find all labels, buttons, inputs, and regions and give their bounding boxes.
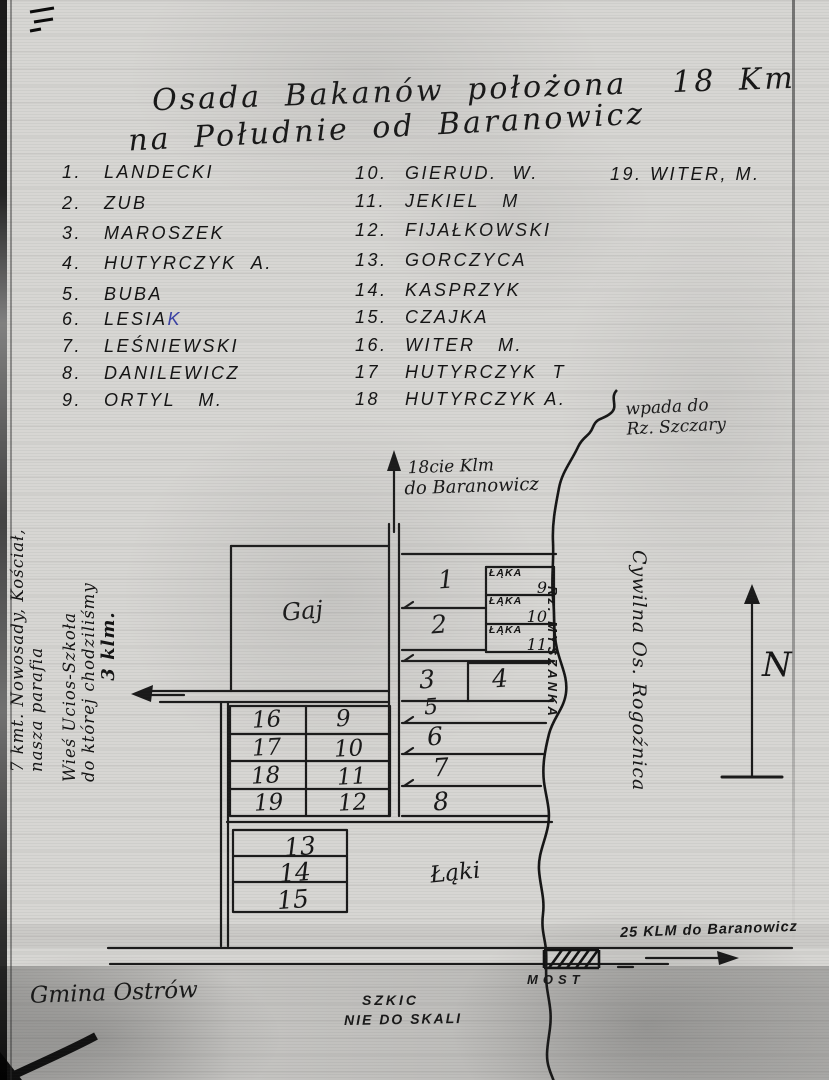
resident-row: 13.GORCZYCA <box>355 250 527 271</box>
river-name-label: Rz. MYSZANKA <box>545 586 560 728</box>
resident-name: JEKIEL M <box>405 191 520 212</box>
resident-name-blue-letter: K <box>168 309 183 330</box>
west-arrowhead-icon <box>131 685 153 702</box>
resident-number: 19. <box>610 164 650 185</box>
resident-row: 7.LEŚNIEWSKI <box>62 336 239 357</box>
scanned-map-page: Osada Bakanów położona 18 Km na Południe… <box>0 0 829 1080</box>
plot-number: 18 <box>250 762 281 789</box>
resident-number: 7. <box>62 336 104 357</box>
resident-number: 15. <box>355 307 405 328</box>
resident-name: MAROSZEK <box>104 223 225 244</box>
resident-name: HUTYRCZYK T <box>405 362 566 383</box>
resident-name: LEŚNIEWSKI <box>104 336 239 357</box>
west-note-parish-line2: nasza parafia <box>27 506 46 772</box>
plot-number: 7 <box>432 752 450 782</box>
resident-name: WITER M. <box>405 335 523 356</box>
compass-north-label: N <box>762 645 792 685</box>
meadow-plot: ŁĄKA 10 <box>486 595 552 623</box>
resident-row: 12.FIJAŁKOWSKI <box>355 220 552 241</box>
resident-name: HUTYRCZYK A. <box>104 253 273 274</box>
resident-row: 3.MAROSZEK <box>62 223 225 244</box>
resident-number: 9. <box>62 390 104 411</box>
north-road-label: 18cie Klm do Baranowicz <box>407 454 539 500</box>
plot-number: 12 <box>337 789 368 816</box>
resident-number: 13. <box>355 250 405 271</box>
resident-name: LESIA <box>104 309 168 330</box>
resident-number: 17 <box>355 362 405 383</box>
resident-number: 11. <box>355 191 405 212</box>
plot-number: 4 <box>491 663 509 693</box>
resident-row: 9.ORTYL M. <box>62 390 223 411</box>
resident-row: 2.ZUB <box>62 193 148 214</box>
resident-row: 19.WITER, M. <box>610 164 761 185</box>
resident-row: 11.JEKIEL M <box>355 191 520 212</box>
resident-name: KASPRZYK <box>405 280 521 301</box>
resident-name: GIERUD. W. <box>405 163 539 184</box>
resident-number: 10. <box>355 163 405 184</box>
resident-name: ORTYL M. <box>104 390 223 411</box>
meadow-plot: ŁĄKA 11 <box>486 624 552 651</box>
plot-number: 10 <box>333 735 364 762</box>
meadow-plot-number: 11 <box>527 635 547 654</box>
east-road-arrowhead-icon <box>717 951 739 965</box>
resident-row: 14.KASPRZYK <box>355 280 521 301</box>
scan-edge-right <box>792 0 795 948</box>
plot-number: 8 <box>432 786 450 816</box>
resident-name: HUTYRCZYK A. <box>405 389 566 410</box>
meadow-plot: ŁĄKA 9 <box>486 567 552 594</box>
west-note-school-line1: Wieś Ucios-Szkoła <box>60 510 79 782</box>
resident-number: 14. <box>355 280 405 301</box>
resident-row: 1.LANDECKI <box>62 162 214 183</box>
plot-number: 19 <box>253 789 284 816</box>
plot-number: 15 <box>276 884 310 915</box>
resident-name: DANILEWICZ <box>104 363 240 384</box>
plot-number: 2 <box>430 609 448 639</box>
plot-number: 6 <box>426 721 444 751</box>
east-settlement-label: Cywilna Os. Rogoźnica <box>628 550 650 798</box>
river-outflow-note: wpada do Rz. Szczary <box>625 394 726 439</box>
west-note-school: Wieś Ucios-Szkoła do której chodziliśmy … <box>60 510 122 782</box>
compass-arrowhead-icon <box>744 584 760 604</box>
west-note-school-line2: do której chodziliśmy <box>79 510 98 782</box>
resident-row: 5.BUBA <box>62 284 163 305</box>
resident-name: LANDECKI <box>104 162 214 183</box>
resident-name: BUBA <box>104 284 163 305</box>
resident-number: 12. <box>355 220 405 241</box>
resident-number: 4. <box>62 253 104 274</box>
scan-edge-line <box>10 0 12 1080</box>
resident-number: 18 <box>355 389 405 410</box>
scan-bottom-band <box>0 966 829 1080</box>
resident-number: 8. <box>62 363 104 384</box>
west-note-school-line3: 3 klm. <box>98 510 119 782</box>
resident-row: 8.DANILEWICZ <box>62 363 240 384</box>
resident-name: GORCZYCA <box>405 250 527 271</box>
meadow-plot-label: ŁĄKA <box>489 595 522 607</box>
resident-row: 18HUTYRCZYK A. <box>355 389 566 410</box>
gaj-area-label: Gaj <box>281 595 324 626</box>
west-note-parish: 7 kmt. Nowosady, Kościał, nasza parafia <box>8 506 54 772</box>
resident-name: WITER, M. <box>650 164 761 185</box>
scan-edge-left <box>0 0 7 1080</box>
resident-row: 10.GIERUD. W. <box>355 163 539 184</box>
resident-name: ZUB <box>104 193 148 214</box>
plot-number: 11 <box>336 763 367 790</box>
resident-row: 15.CZAJKA <box>355 307 489 328</box>
plot-number: 3 <box>418 664 436 694</box>
meadow-plot-label: ŁĄKA <box>489 567 522 579</box>
north-arrowhead-icon <box>387 450 401 471</box>
resident-number: 3. <box>62 223 104 244</box>
plot-number: 9 <box>335 706 351 733</box>
resident-number: 5. <box>62 284 104 305</box>
resident-row: 6.LESIAK <box>62 309 182 330</box>
plot-number: 1 <box>437 564 455 594</box>
plot-number: 17 <box>251 734 282 761</box>
resident-number: 16. <box>355 335 405 356</box>
resident-name: CZAJKA <box>405 307 489 328</box>
meadow-plot-label: ŁĄKA <box>489 624 522 636</box>
plot-number: 16 <box>251 706 282 733</box>
resident-number: 2. <box>62 193 104 214</box>
laki-area-label: Łąki <box>429 857 482 888</box>
resident-name: FIJAŁKOWSKI <box>405 220 552 241</box>
corner-scan-marks <box>30 8 54 31</box>
resident-row: 4.HUTYRCZYK A. <box>62 253 273 274</box>
resident-number: 1. <box>62 162 104 183</box>
plot-number: 5 <box>423 695 439 721</box>
resident-row: 17HUTYRCZYK T <box>355 362 566 383</box>
resident-row: 16.WITER M. <box>355 335 523 356</box>
resident-number: 6. <box>62 309 104 330</box>
